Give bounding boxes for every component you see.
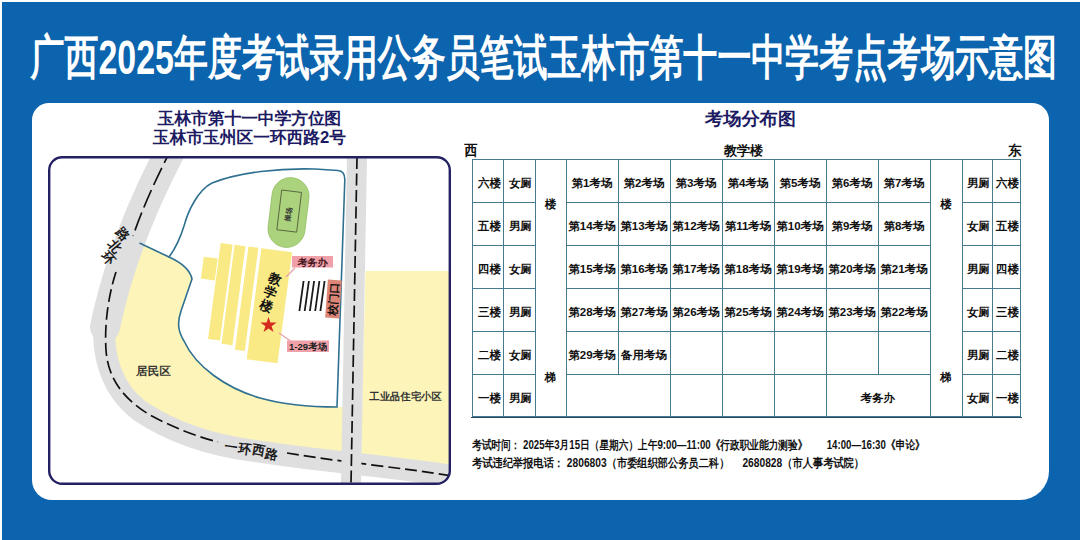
svg-text:第2考场: 第2考场: [624, 177, 665, 189]
svg-text:东: 东: [1007, 143, 1022, 158]
svg-text:环: 环: [236, 440, 252, 457]
svg-text:第18考场: 第18考场: [724, 263, 772, 275]
svg-text:梯: 梯: [939, 371, 952, 383]
svg-text:考场分布图: 考场分布图: [704, 109, 796, 129]
svg-text:女厕: 女厕: [966, 220, 990, 233]
svg-text:男厕: 男厕: [508, 220, 532, 232]
svg-text:第20考场: 第20考场: [828, 263, 876, 275]
svg-text:五楼: 五楼: [995, 220, 1020, 232]
svg-text:第27考场: 第27考场: [620, 306, 668, 318]
svg-text:五楼: 五楼: [477, 220, 502, 232]
svg-text:第3考场: 第3考场: [676, 177, 717, 189]
svg-text:第12考场: 第12考场: [672, 220, 720, 232]
svg-text:男厕: 男厕: [966, 349, 990, 361]
svg-text:六楼: 六楼: [477, 176, 502, 189]
svg-text:第5考场: 第5考场: [780, 177, 821, 189]
svg-text:第9考场: 第9考场: [832, 220, 873, 232]
svg-text:备用考场: 备用考场: [620, 349, 668, 361]
svg-text:男厕: 男厕: [966, 177, 990, 189]
svg-text:第24考场: 第24考场: [776, 306, 824, 318]
svg-text:一: 一: [224, 439, 239, 456]
svg-text:考试时间： 2025年3月15日（星期六）上午9:00—11: 考试时间： 2025年3月15日（星期六）上午9:00—11:00《行政职业能力…: [471, 437, 924, 451]
svg-text:四楼: 四楼: [478, 263, 502, 275]
svg-text:第7考场: 第7考场: [884, 177, 925, 189]
svg-text:女厕: 女厕: [966, 306, 990, 319]
svg-text:第8考场: 第8考场: [884, 220, 925, 232]
svg-text:女厕: 女厕: [966, 392, 990, 405]
svg-text:第28考场: 第28考场: [568, 306, 616, 318]
svg-text:教学楼: 教学楼: [723, 143, 764, 158]
svg-text:二楼: 二楼: [478, 349, 502, 361]
svg-text:男厕: 男厕: [966, 263, 990, 275]
svg-text:第10考场: 第10考场: [776, 220, 824, 232]
svg-text:工业品住宅小区: 工业品住宅小区: [368, 390, 442, 402]
svg-text:二楼: 二楼: [996, 349, 1020, 361]
svg-text:校门口: 校门口: [326, 282, 340, 317]
svg-text:三楼: 三楼: [996, 306, 1020, 318]
svg-text:第16考场: 第16考场: [620, 263, 668, 275]
svg-text:女厕: 女厕: [508, 177, 532, 190]
svg-text:四楼: 四楼: [996, 263, 1020, 275]
svg-text:女厕: 女厕: [508, 263, 532, 276]
svg-text:第14考场: 第14考场: [568, 220, 616, 232]
svg-text:考务办: 考务办: [860, 392, 896, 404]
svg-text:男厕: 男厕: [508, 392, 532, 404]
svg-text:第29考场: 第29考场: [568, 349, 616, 361]
svg-text:一楼: 一楼: [478, 392, 502, 404]
svg-text:第13考场: 第13考场: [620, 220, 668, 232]
svg-text:第1考场: 第1考场: [572, 177, 613, 189]
svg-text:第15考场: 第15考场: [568, 263, 616, 275]
svg-text:第26考场: 第26考场: [672, 306, 720, 318]
svg-text:第4考场: 第4考场: [728, 177, 769, 189]
svg-text:楼: 楼: [939, 198, 952, 210]
svg-text:广西2025年度考试录用公务员笔试玉林市第十一中学考点考场示: 广西2025年度考试录用公务员笔试玉林市第十一中学考点考场示意图: [30, 30, 1057, 84]
svg-text:居民区: 居民区: [135, 365, 171, 377]
svg-text:楼: 楼: [544, 198, 557, 210]
svg-text:女厕: 女厕: [508, 349, 532, 362]
svg-text:1-29考场: 1-29考场: [289, 341, 328, 352]
svg-text:第25考场: 第25考场: [724, 306, 772, 318]
svg-text:第11考场: 第11考场: [725, 220, 772, 232]
svg-text:第21考场: 第21考场: [880, 263, 928, 275]
svg-text:西: 西: [464, 143, 479, 158]
svg-text:梯: 梯: [544, 371, 557, 383]
svg-text:三楼: 三楼: [478, 306, 502, 318]
svg-text:第19考场: 第19考场: [776, 263, 824, 275]
svg-text:第6考场: 第6考场: [832, 177, 873, 189]
svg-text:第22考场: 第22考场: [880, 306, 928, 318]
svg-text:考务办: 考务办: [297, 257, 329, 268]
svg-text:第23考场: 第23考场: [828, 306, 876, 318]
svg-text:考试违纪举报电话： 2806803（市委组织部公务员二科）: 考试违纪举报电话： 2806803（市委组织部公务员二科） 2680828（市人…: [471, 455, 864, 470]
svg-text:第17考场: 第17考场: [672, 263, 720, 275]
svg-text:一楼: 一楼: [996, 392, 1020, 404]
svg-text:六楼: 六楼: [995, 176, 1020, 189]
svg-text:男厕: 男厕: [508, 306, 532, 318]
